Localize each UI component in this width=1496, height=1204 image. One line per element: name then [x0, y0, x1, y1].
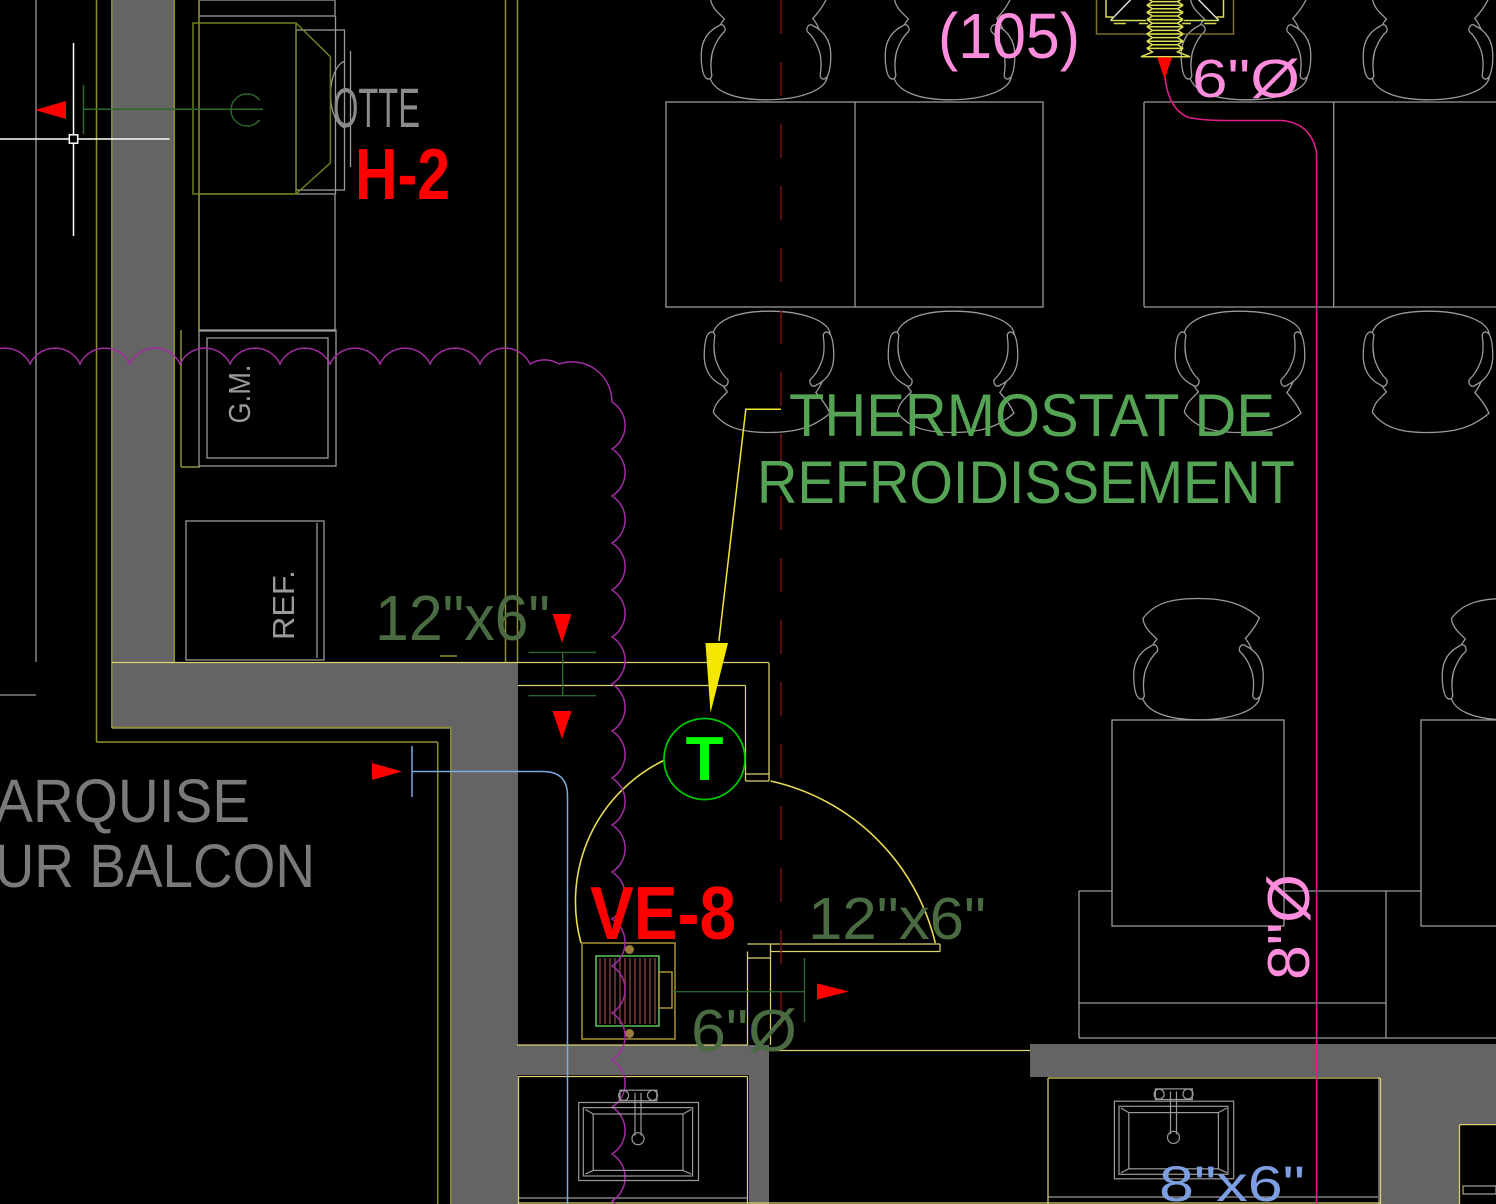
svg-text:12"x6": 12"x6": [375, 582, 550, 654]
svg-text:REF.: REF.: [266, 570, 301, 640]
svg-text:6"Ø: 6"Ø: [1192, 49, 1300, 109]
svg-text:G.M.: G.M.: [222, 365, 257, 424]
svg-text:VE-8: VE-8: [590, 871, 736, 955]
svg-text:OTTE: OTTE: [333, 76, 420, 139]
svg-text:SUR BALCON: SUR BALCON: [0, 832, 315, 900]
svg-text:MARQUISE: MARQUISE: [0, 767, 250, 835]
svg-text:REFROIDISSEMENT: REFROIDISSEMENT: [757, 449, 1295, 516]
svg-text:6"Ø: 6"Ø: [691, 998, 797, 1064]
svg-text:H-2: H-2: [355, 135, 450, 215]
svg-text:THERMOSTAT DE: THERMOSTAT DE: [789, 382, 1275, 449]
svg-text:(105): (105): [938, 0, 1080, 72]
svg-text:8"Ø: 8"Ø: [1256, 874, 1322, 980]
svg-text:T: T: [686, 725, 724, 794]
svg-text:12"x6": 12"x6": [808, 886, 986, 952]
svg-text:8"x6": 8"x6": [1159, 1156, 1305, 1204]
